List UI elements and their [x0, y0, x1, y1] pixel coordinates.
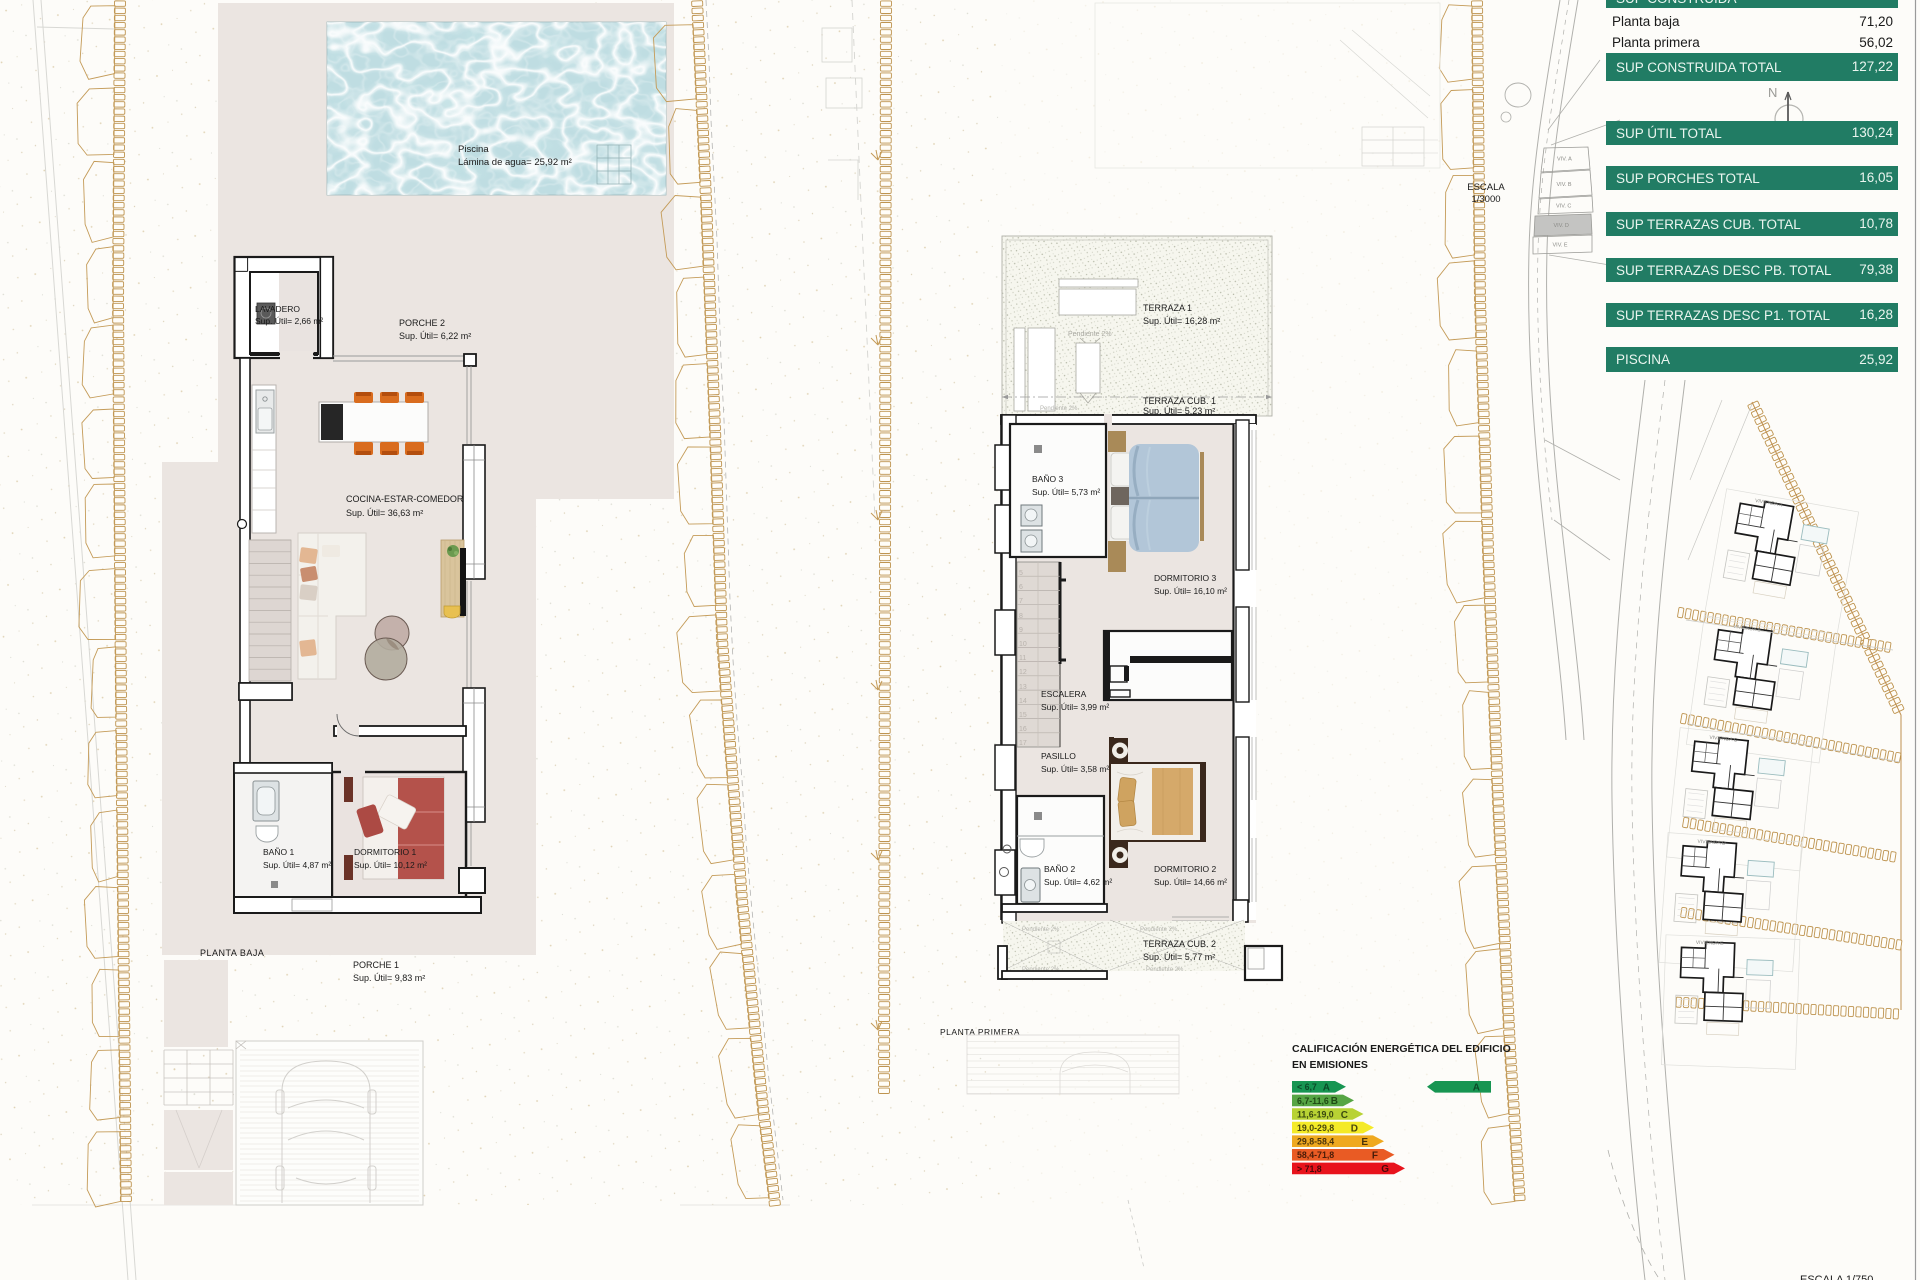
svg-text:5: 5: [1019, 570, 1023, 577]
svg-text:TERRAZA 1: TERRAZA 1: [1143, 303, 1192, 313]
svg-text:ESCALA 1/750: ESCALA 1/750: [1800, 1274, 1873, 1280]
svg-text:58,4-71,8: 58,4-71,8: [1297, 1150, 1334, 1160]
svg-text:Sup. Útil= 4,62 m²: Sup. Útil= 4,62 m²: [1044, 877, 1112, 887]
svg-text:Sup. Útil= 9,83 m²: Sup. Útil= 9,83 m²: [353, 973, 425, 983]
svg-text:Pendiente 2%: Pendiente 2%: [1068, 331, 1112, 338]
svg-text:6,7-11,6: 6,7-11,6: [1297, 1096, 1329, 1106]
svg-text:VIV. A: VIV. A: [1557, 157, 1572, 163]
svg-text:SUP PORCHES TOTAL: SUP PORCHES TOTAL: [1616, 171, 1760, 186]
svg-text:N: N: [1768, 85, 1777, 100]
svg-text:PLANTA BAJA: PLANTA BAJA: [200, 948, 264, 958]
svg-text:Pendiente 2%: Pendiente 2%: [1040, 406, 1078, 412]
svg-text:16,05: 16,05: [1859, 170, 1893, 185]
svg-text:8: 8: [1019, 613, 1023, 620]
svg-text:SUP TERRAZAS CUB. TOTAL: SUP TERRAZAS CUB. TOTAL: [1616, 217, 1801, 232]
svg-text:11: 11: [1019, 655, 1026, 662]
svg-text:Sup. Útil= 16,10 m²: Sup. Útil= 16,10 m²: [1154, 586, 1227, 596]
svg-text:Pendiente 2%: Pendiente 2%: [1140, 927, 1178, 933]
svg-text:130,24: 130,24: [1852, 125, 1894, 140]
svg-text:DORMITORIO 2: DORMITORIO 2: [1154, 864, 1216, 874]
svg-text:SUP CONSTRUIDA TOTAL: SUP CONSTRUIDA TOTAL: [1616, 60, 1782, 75]
svg-text:71,20: 71,20: [1859, 14, 1893, 29]
svg-text:Piscina: Piscina: [458, 144, 489, 155]
svg-text:PLANTA PRIMERA: PLANTA PRIMERA: [940, 1027, 1020, 1037]
svg-text:VIVIENDA E: VIVIENDA E: [1696, 940, 1725, 947]
svg-text:Sup. Útil= 3,99 m²: Sup. Útil= 3,99 m²: [1041, 702, 1109, 712]
svg-text:A: A: [1473, 1083, 1480, 1094]
svg-text:TERRAZA CUB. 1: TERRAZA CUB. 1: [1143, 396, 1216, 406]
svg-text:Lámina de agua= 25,92 m²: Lámina de agua= 25,92 m²: [458, 157, 572, 168]
svg-text:16: 16: [1019, 726, 1027, 733]
svg-text:Sup. Útil= 3,58 m²: Sup. Útil= 3,58 m²: [1041, 764, 1109, 774]
svg-text:C: C: [1341, 1110, 1348, 1121]
svg-text:Sup. Útil= 4,87 m²: Sup. Útil= 4,87 m²: [263, 860, 331, 870]
svg-text:6: 6: [1019, 584, 1023, 591]
svg-text:Planta baja: Planta baja: [1612, 14, 1680, 29]
svg-text:56,02: 56,02: [1859, 35, 1893, 50]
svg-text:VIV. B: VIV. B: [1557, 182, 1572, 188]
svg-text:7: 7: [1019, 598, 1023, 605]
svg-text:Sup. Útil= 5,77 m²: Sup. Útil= 5,77 m²: [1143, 952, 1215, 962]
svg-text:SUP ÚTIL TOTAL: SUP ÚTIL TOTAL: [1616, 126, 1722, 141]
svg-text:14: 14: [1019, 698, 1027, 705]
svg-text:SUP TERRAZAS DESC P1. TOTAL: SUP TERRAZAS DESC P1. TOTAL: [1616, 308, 1831, 323]
svg-text:DORMITORIO 1: DORMITORIO 1: [354, 847, 416, 857]
svg-text:Sup. Útil= 6,22 m²: Sup. Útil= 6,22 m²: [399, 331, 471, 341]
svg-text:PORCHE 1: PORCHE 1: [353, 960, 399, 970]
svg-text:VIV. D: VIV. D: [1554, 223, 1569, 229]
svg-text:Sup. Útil= 14,66 m²: Sup. Útil= 14,66 m²: [1154, 877, 1227, 887]
svg-text:12: 12: [1019, 669, 1027, 676]
svg-text:Sup. Útil= 16,28 m²: Sup. Útil= 16,28 m²: [1143, 316, 1220, 326]
svg-text:SUP CONSTRUIDA: SUP CONSTRUIDA: [1616, 0, 1737, 6]
svg-text:127,22: 127,22: [1852, 59, 1893, 74]
svg-text:Sup. Útil= 10,12 m²: Sup. Útil= 10,12 m²: [354, 860, 427, 870]
svg-text:9: 9: [1019, 627, 1023, 634]
svg-text:COCINA-ESTAR-COMEDOR: COCINA-ESTAR-COMEDOR: [346, 494, 464, 504]
svg-text:16,28: 16,28: [1859, 307, 1893, 322]
svg-text:Sup. Útil= 5,73 m²: Sup. Útil= 5,73 m²: [1032, 487, 1100, 497]
svg-text:PORCHE 2: PORCHE 2: [399, 318, 445, 328]
svg-text:F: F: [1372, 1151, 1378, 1162]
svg-text:TERRAZA CUB. 2: TERRAZA CUB. 2: [1143, 939, 1216, 949]
svg-text:13: 13: [1019, 684, 1027, 691]
svg-text:B: B: [1331, 1096, 1338, 1107]
svg-text:G: G: [1381, 1164, 1389, 1175]
svg-text:Pendiente 2%: Pendiente 2%: [1146, 967, 1184, 973]
svg-text:D: D: [1351, 1123, 1358, 1134]
svg-text:Sup. Útil= 2,66 m²: Sup. Útil= 2,66 m²: [255, 316, 323, 326]
svg-text:SUP TERRAZAS DESC PB. TOTAL: SUP TERRAZAS DESC PB. TOTAL: [1616, 263, 1832, 278]
svg-text:29,8-58,4: 29,8-58,4: [1297, 1137, 1334, 1147]
svg-text:LAVADERO: LAVADERO: [255, 304, 300, 314]
svg-text:> 71,8: > 71,8: [1297, 1164, 1322, 1174]
svg-text:Planta primera: Planta primera: [1612, 35, 1700, 50]
svg-text:Pendiente 2%: Pendiente 2%: [1022, 927, 1060, 933]
svg-text:10: 10: [1019, 641, 1027, 648]
svg-text:25,92: 25,92: [1859, 352, 1893, 367]
svg-text:PASILLO: PASILLO: [1041, 751, 1076, 761]
svg-text:11,6-19,0: 11,6-19,0: [1297, 1109, 1334, 1119]
svg-text:10,78: 10,78: [1859, 216, 1893, 231]
svg-text:BAÑO 2: BAÑO 2: [1044, 864, 1075, 874]
svg-text:< 6,7: < 6,7: [1297, 1082, 1317, 1092]
svg-text:19,0-29,8: 19,0-29,8: [1297, 1123, 1334, 1133]
svg-text:1/3000: 1/3000: [1471, 194, 1500, 205]
svg-text:E: E: [1361, 1137, 1368, 1148]
svg-text:VIV. E: VIV. E: [1553, 243, 1568, 249]
svg-text:PISCINA: PISCINA: [1616, 352, 1670, 367]
svg-text:15: 15: [1019, 712, 1027, 719]
svg-text:A: A: [1323, 1083, 1330, 1094]
svg-text:BAÑO 3: BAÑO 3: [1032, 474, 1063, 484]
svg-text:EN EMISIONES: EN EMISIONES: [1292, 1059, 1368, 1071]
svg-text:VIV. C: VIV. C: [1556, 204, 1571, 210]
svg-text:BAÑO 1: BAÑO 1: [263, 847, 294, 857]
svg-text:79,38: 79,38: [1859, 262, 1893, 277]
svg-text:ESCALERA: ESCALERA: [1041, 689, 1087, 699]
svg-text:Sup. Útil= 36,63 m²: Sup. Útil= 36,63 m²: [346, 508, 423, 518]
svg-text:17: 17: [1019, 740, 1027, 747]
svg-text:ESCALA: ESCALA: [1467, 182, 1505, 193]
svg-text:DORMITORIO 3: DORMITORIO 3: [1154, 573, 1216, 583]
svg-text:CALIFICACIÓN ENERGÉTICA DEL ED: CALIFICACIÓN ENERGÉTICA DEL EDIFICIO: [1292, 1042, 1511, 1055]
